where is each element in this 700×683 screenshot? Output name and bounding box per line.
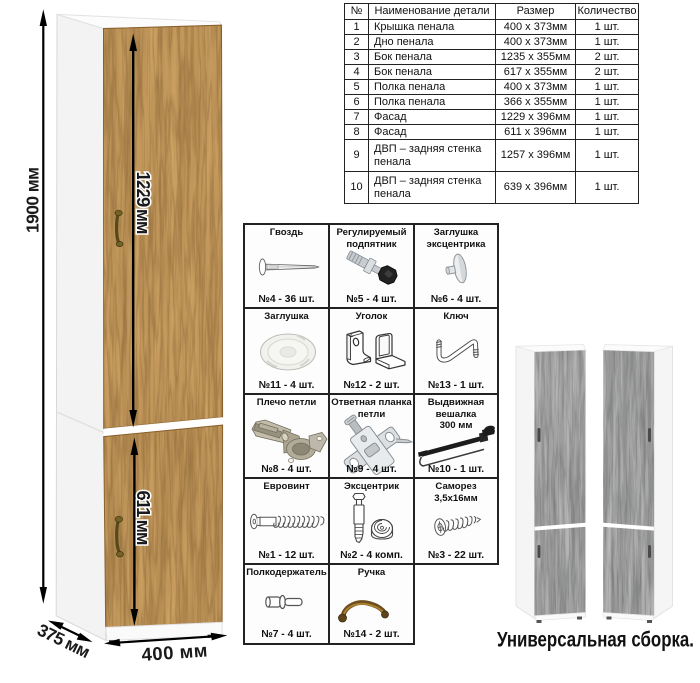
svg-text:Универсальная сборка.: Универсальная сборка. — [497, 628, 694, 652]
svg-text:400 мм: 400 мм — [141, 639, 208, 665]
svg-text:1900 мм: 1900 мм — [23, 167, 43, 233]
svg-text:611 мм: 611 мм — [133, 491, 154, 546]
svg-text:1229 мм: 1229 мм — [133, 172, 154, 235]
